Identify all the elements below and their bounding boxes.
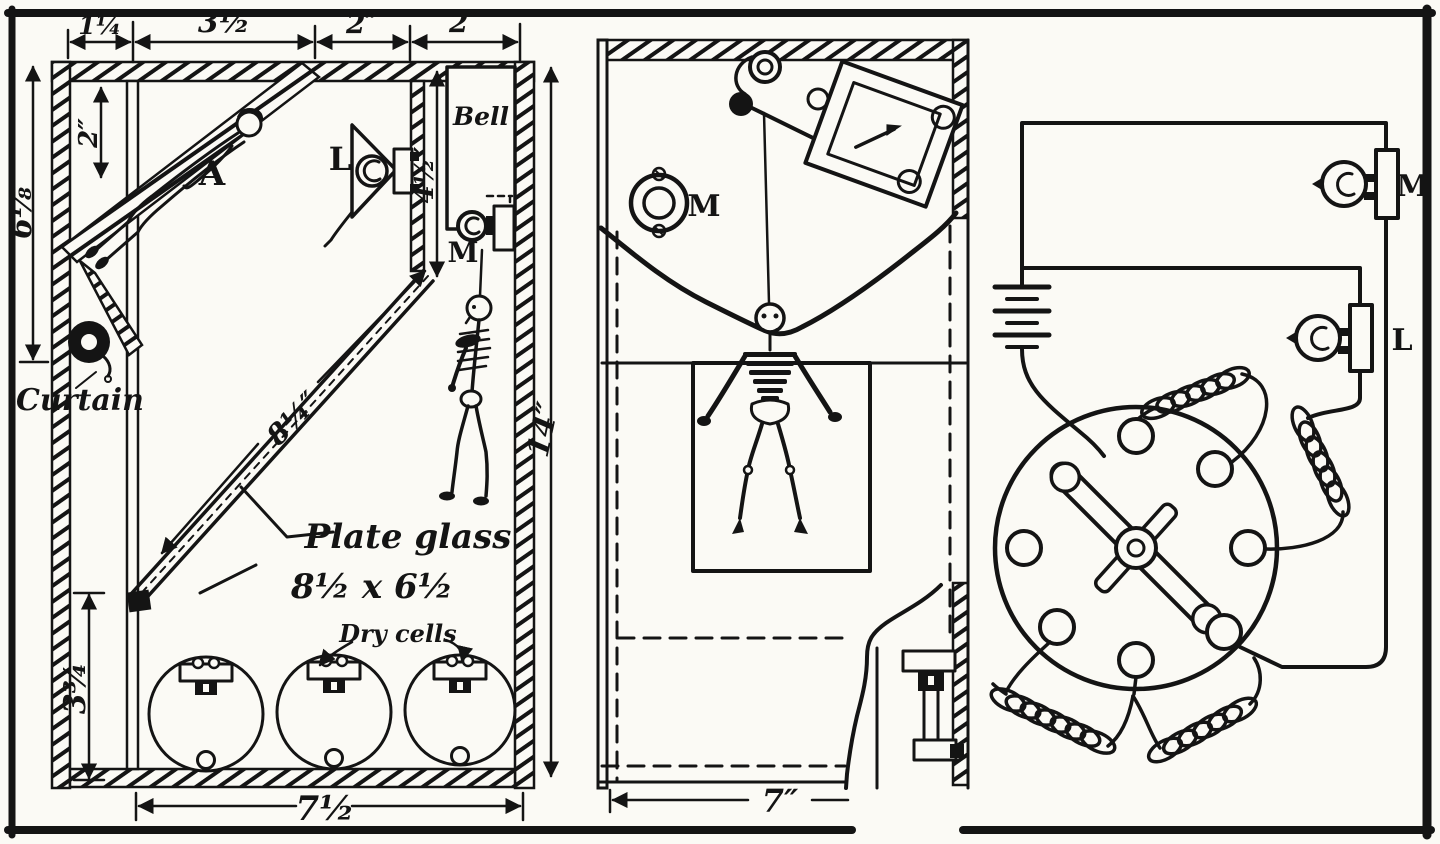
inner-partition (127, 81, 138, 769)
illusion-apparatus-figure: A L Bell M (0, 0, 1440, 844)
circuit-lamp-l-icon (1286, 305, 1372, 371)
bell-label: Bell (452, 102, 509, 131)
coil-spring-bottom-left (988, 642, 1133, 758)
dry-cells-icon (149, 640, 515, 771)
contact-s (1119, 643, 1153, 677)
contact-sw (1040, 610, 1074, 644)
front-view-dimension (610, 790, 848, 812)
magnet-label: M (448, 236, 479, 269)
skeleton-front-icon (697, 113, 842, 534)
plate-glass-label-2: 8½ x 6½ (290, 567, 453, 607)
torn-away-cell-icon (846, 585, 964, 788)
circuit-lamp-m-label: M (1396, 169, 1429, 204)
front-left-wall (598, 40, 607, 788)
dim-bottom-width: 7½ (295, 789, 354, 829)
side-view-panel: A L Bell M (4, 5, 567, 829)
curtain-label: Curtain (16, 383, 144, 418)
bottom-board (70, 769, 515, 787)
dim-left-inner: 2″ (74, 118, 104, 149)
coil-spring-right (1266, 404, 1353, 549)
dim-bell-height: 4½″ (410, 146, 440, 203)
battery-icon (995, 287, 1104, 456)
circuit-panel: M L (988, 123, 1430, 767)
contact-e (1231, 531, 1265, 565)
contact-se (1207, 615, 1241, 649)
dry-cell (149, 657, 263, 771)
dim-top-d: 2″ (448, 6, 481, 39)
front-top-board (598, 40, 968, 60)
front-dim-bottom: 7″ (762, 782, 799, 820)
dry-cell (277, 655, 391, 769)
dim-top-a: 1¼ (78, 11, 121, 40)
plate-glass-label-1: Plate glass (304, 517, 512, 557)
scanned-diagram-page: A L Bell M (0, 0, 1440, 844)
front-view-panel: M (598, 40, 968, 820)
coil-spring-top (1138, 364, 1267, 462)
dry-cell (405, 655, 515, 765)
assistant-label: A (198, 154, 226, 194)
dim-left-outer: 6⅛ (4, 187, 39, 239)
dry-cells-label: Dry cells (338, 619, 457, 648)
contact-w (1007, 531, 1041, 565)
skeleton-side-icon (439, 296, 491, 506)
front-magnet-label: M (687, 189, 720, 224)
contact-top (1119, 419, 1153, 453)
dim-top-c: 2″ (345, 7, 378, 40)
circuit-lamp-m-icon (1312, 150, 1398, 218)
dim-top-b: 3½ (198, 5, 250, 40)
lamp-label: L (329, 140, 352, 178)
rotary-switch-wheel (995, 407, 1277, 689)
curtain-roller-icon (68, 321, 111, 388)
grommet-icon (631, 168, 687, 237)
circuit-lamp-l-label: L (1391, 323, 1412, 358)
contact-ne (1198, 452, 1232, 486)
dim-cell-height: 3¾ (58, 662, 93, 714)
